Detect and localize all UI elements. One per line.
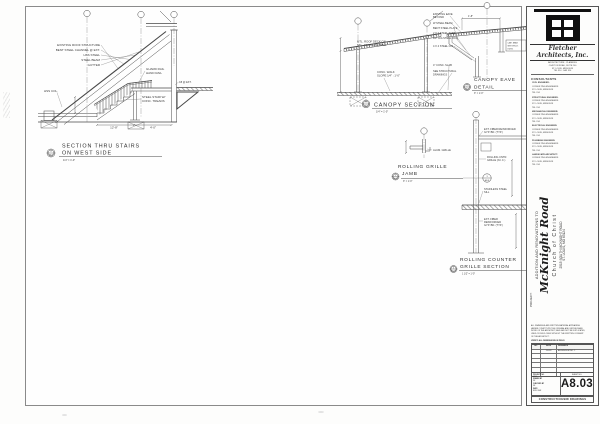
detail-sheet: A8.03 <box>364 105 368 108</box>
sheet-info-block: PROJECT NO.0204 DRAWN BYDF CHECKED BYDF … <box>531 372 594 396</box>
annotation-label: EXISTING ROOF STRUCTURE <box>57 43 100 47</box>
firm-address: ARCHITECTURE · PLANNINGCLAYTON ROAD, SUI… <box>531 62 594 75</box>
stair-section-drawing: EXISTING ROOF STRUCTURE BENT STEEL CHANN… <box>30 8 225 166</box>
micro-text-line: TEL 314 <box>532 150 594 153</box>
note-label: CANT. BEAM <box>508 42 519 45</box>
sheet-number-label: SHEET NO. <box>561 374 593 376</box>
drawing-title: DETAIL <box>474 85 495 91</box>
drawing-title: CANOPY EAVE <box>474 77 516 83</box>
jamb-title: 5 A8.03 ROLLING GRILLE JAMB 3" = 1'-0" <box>392 164 463 183</box>
project-address-line2: ST. LOUIS, MO 63124 <box>563 179 567 311</box>
annotation-label: SILL <box>484 190 490 194</box>
jamb-geometry: ALUM. GRILLE <box>405 128 451 158</box>
drawing-scale: 1 1/2" = 1'-0" <box>462 274 475 276</box>
project-title-block: PROJECT: ADDITION AND RENOVATIONS TO McK… <box>527 179 596 311</box>
detail-number: 5 <box>395 175 396 177</box>
annotation-label: BEYOND <box>433 15 444 19</box>
revision-col-date: DATE <box>541 345 557 349</box>
drawing-scale: 3" = 1'-0" <box>403 181 412 183</box>
annotation-label: GYP. BD. (TYP.) <box>484 130 503 134</box>
sheet-number: A8.03 <box>561 378 593 390</box>
firm-name: Fletcher Architects, Inc. <box>530 44 595 61</box>
annotation-label: ALUM. GRILLE <box>433 148 451 152</box>
annotation-label: HSS STEEL <box>83 53 100 57</box>
project-label: PROJECT: <box>529 179 533 307</box>
eave-annotations: CANT. BEAM SEE STRUCT. DWGS. EXISTING EA… <box>433 12 519 96</box>
scan-artifact <box>62 414 67 416</box>
stair-geometry <box>38 11 213 129</box>
scan-artifact <box>3 92 10 118</box>
note-label: DWGS. <box>508 49 514 51</box>
detail-callout-sheet: A8.03 <box>485 179 489 182</box>
micro-text-line: TEL 314 <box>532 107 594 110</box>
title-block-top-rule <box>534 9 591 12</box>
detail-sheet: A8.03 <box>451 270 455 273</box>
annotation-label: DRAWINGS <box>433 73 447 77</box>
drawing-sheet: EXISTING ROOF STRUCTURE BENT STEEL CHANN… <box>0 0 600 424</box>
field-value: NOV. 2002 <box>533 390 559 392</box>
sheet-fields: PROJECT NO.0204 DRAWN BYDF CHECKED BYDF … <box>532 373 561 395</box>
annotation-label: 1/2" DIA STEEL ROD <box>433 36 458 40</box>
detail-number: 1 <box>366 102 367 104</box>
project-address: 2515 SOUTH MCKNIGHT ROAD ST. LOUIS, MO 6… <box>559 179 567 311</box>
drawing-title: ROLLING COUNTER <box>460 257 517 263</box>
drawing-title: GRILLE SECTION <box>460 264 510 270</box>
consultants-heading: CONSULTANTS <box>531 77 594 81</box>
stair-title: 4 A8.03 SECTION THRU STAIRS ON WEST SIDE… <box>47 144 162 162</box>
drawing-title: SECTION THRU STAIRS <box>62 144 140 150</box>
firm-logo <box>546 15 580 41</box>
detail-sheet: A8.03 <box>49 154 53 157</box>
eave-title: 2 A8.03 CANOPY EAVE DETAIL 3" = 1'-0" <box>464 77 528 95</box>
title-block: Fletcher Architects, Inc. ARCHITECTURE ·… <box>526 6 599 406</box>
annotation-label: GYP. BD. (TYP.) <box>484 223 503 227</box>
dimension-label: 1'-8" <box>468 15 473 18</box>
annotation-label: HAND RAIL <box>146 71 162 75</box>
dimension-label: 4'-0" <box>150 126 156 130</box>
micro-text-line: TEL 314 <box>532 164 594 167</box>
detail-number: 6 <box>453 267 454 269</box>
field-note: VERIFY ALL DIMENSIONS IN FIELD <box>531 340 594 344</box>
annotation-label: STEEL BEAM <box>81 58 100 62</box>
project-name-line2: Church of Christ <box>552 179 558 311</box>
annotation-label: GRILLE (N.I.C.) <box>487 158 505 162</box>
annotation-label: 2 X 2 STEEL TUBE <box>433 31 456 35</box>
revision-col-remarks: REMARKS <box>557 345 593 349</box>
canopy-grid-bubbles <box>355 11 443 94</box>
revision-col-no: NO. <box>532 345 541 349</box>
micro-text-line: OF THE ARCHITECT. <box>531 336 594 339</box>
field-value: DF <box>533 380 559 382</box>
micro-text-line: TEL 314 <box>532 135 594 138</box>
note-label: SEE STRUCT. <box>508 46 520 48</box>
drawing-scale: 1/4" = 1'-0" <box>63 159 75 162</box>
grille-drawings: ALUM. GRILLE 5 A8.03 ROLLING GRILLE JAMB… <box>388 105 528 285</box>
annotation-label: SEE STRUCTURAL <box>433 69 457 73</box>
drawing-title: ROLLING GRILLE <box>398 164 447 170</box>
micro-text-line: TEL 314 <box>532 121 594 124</box>
annotation-label: 4 X 4 STEEL COL. <box>433 44 455 48</box>
detail-sheet: A8.03 <box>393 177 397 180</box>
drawing-scale: 3" = 1'-0" <box>474 93 483 95</box>
annotation-label: SLOPE 1/4" : 1'-0" <box>377 74 400 78</box>
drawing-title: ON WEST SIDE <box>62 151 112 157</box>
copyright-notes: ALL DRAWINGS AND WRITTEN MATERIAL APPEAR… <box>531 325 594 339</box>
annotation-label: STL. JOISTS, SLOPED <box>357 43 386 47</box>
micro-text-line: TEL 314 · FAX 314 <box>531 70 594 73</box>
project-name: McKnight Road <box>539 179 551 311</box>
annotation-label: BENT STEEL CHANNEL @ EXT. <box>56 48 100 52</box>
field-value: DF <box>533 385 559 387</box>
consultants-list: CIVIL ENGINEER:CONSULTING ENGINEERSST. L… <box>532 82 594 167</box>
annotation-label: 4" CONC. SLAB <box>433 63 452 67</box>
annotation-label: CONC. TREADS <box>142 99 165 103</box>
annotation-label: BENT STEEL PLATE <box>433 26 458 30</box>
drawing-title: JAMB <box>402 171 418 177</box>
drawing-scale: 1/4" = 1'-0" <box>376 111 388 114</box>
annotation-label: HSS COL. <box>44 89 58 93</box>
detail-number: 4 <box>51 151 52 153</box>
detail-sheet: A8.03 <box>465 88 469 91</box>
firm-name-line2: Architects, Inc. <box>530 53 595 60</box>
sheet-number-area: SHEET NO. A8.03 <box>561 373 593 395</box>
scan-artifact <box>318 411 324 413</box>
micro-text-line: TEL 314 <box>532 92 594 95</box>
counter-title: 6 A8.03 ROLLING COUNTER GRILLE SECTION 1… <box>450 257 527 276</box>
annotation-label: C8 @ EXT. <box>179 81 192 84</box>
annotation-label: W STEEL BEAM <box>433 21 452 25</box>
annotation-label: GUTTER <box>88 63 101 67</box>
detail-number: 2 <box>467 85 468 87</box>
dimension-label: 12'-8" <box>110 126 118 130</box>
drawing-set-type: CONSTRUCTION/BID DRAWINGS <box>531 396 594 403</box>
canopy-annotations: MTL. ROOF DECK ON STL. JOISTS, SLOPED CO… <box>357 40 400 92</box>
